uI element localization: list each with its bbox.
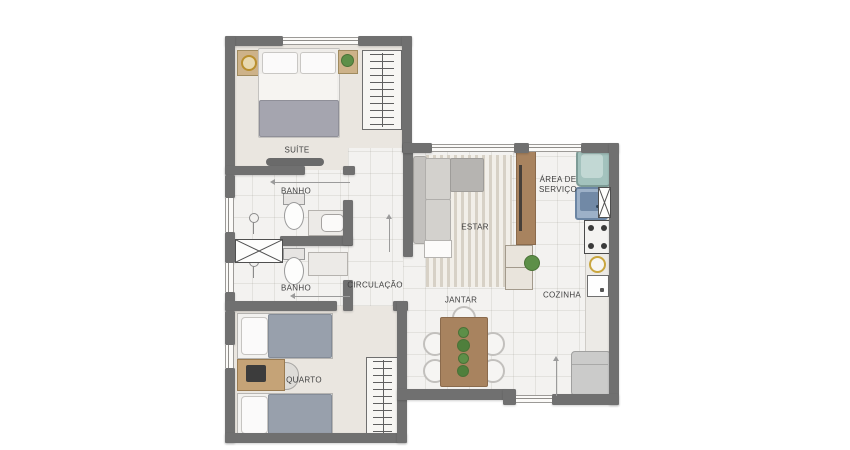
bed-sheet xyxy=(259,74,337,103)
wall xyxy=(343,200,353,245)
sofa-seat xyxy=(425,158,451,200)
wall xyxy=(225,166,305,175)
bed-blanket xyxy=(268,394,332,436)
room-label-area-servico-line1: ÁREA DE xyxy=(539,175,577,185)
wall xyxy=(552,394,619,405)
room-label-circulacao: CIRCULAÇÃO xyxy=(347,281,402,290)
plant-icon xyxy=(458,327,469,338)
room-label-area-servico: ÁREA DE SERVIÇO xyxy=(539,175,577,195)
toilet xyxy=(284,257,304,285)
wall xyxy=(397,301,407,443)
pillow xyxy=(300,52,336,74)
room-label-area-servico-line2: SERVIÇO xyxy=(539,185,577,195)
burner-icon xyxy=(588,225,594,231)
wall xyxy=(225,232,235,263)
ventilation-x-icon xyxy=(235,239,283,263)
shower-stem xyxy=(253,266,254,278)
window xyxy=(432,144,514,152)
floor-plan: SUÍTE BANHO BANHO CIRCULAÇÃO ESTAR JANTA… xyxy=(0,0,850,450)
room-label-quarto: QUARTO xyxy=(286,376,322,385)
wall xyxy=(397,389,507,400)
stove xyxy=(584,220,611,254)
room-label-banho-2: BANHO xyxy=(281,284,311,293)
kitchen-sink xyxy=(589,256,606,273)
wall xyxy=(503,389,516,405)
pillow xyxy=(241,317,268,355)
wall xyxy=(609,143,619,405)
bench xyxy=(266,158,324,166)
decor-icon xyxy=(241,55,257,71)
wall xyxy=(225,368,235,443)
window xyxy=(225,345,234,368)
wardrobe xyxy=(366,357,399,436)
window xyxy=(529,144,581,152)
bed-blanket xyxy=(268,314,332,358)
tv xyxy=(519,165,522,231)
burner-icon xyxy=(601,243,607,249)
pillow xyxy=(262,52,298,74)
wall xyxy=(402,36,412,153)
burner-icon xyxy=(601,225,607,231)
wall xyxy=(403,143,432,153)
plant-icon xyxy=(341,54,354,67)
door-arrow-icon xyxy=(389,216,390,252)
armchair-pouf xyxy=(450,158,484,192)
burner-icon xyxy=(588,243,594,249)
wall xyxy=(225,36,235,175)
wall xyxy=(225,301,337,311)
wall xyxy=(225,311,235,345)
wall xyxy=(403,143,413,257)
sofa-seat xyxy=(425,199,451,241)
bed-duvet xyxy=(259,100,339,137)
side-table xyxy=(424,240,452,258)
plant-icon xyxy=(457,339,470,352)
sink-vanity xyxy=(308,252,348,276)
window xyxy=(225,198,234,232)
room-label-estar: ESTAR xyxy=(461,223,489,232)
shower-stem xyxy=(253,222,254,234)
window xyxy=(516,395,552,403)
room-label-jantar: JANTAR xyxy=(445,296,477,305)
room-label-suite: SUÍTE xyxy=(284,146,309,155)
window xyxy=(225,263,234,292)
washer-door xyxy=(580,192,599,211)
room-label-banho-1: BANHO xyxy=(281,187,311,196)
wall xyxy=(343,166,355,175)
fridge-door-line xyxy=(572,364,608,365)
toilet xyxy=(284,202,304,230)
oven-handle xyxy=(600,288,604,292)
door-arrow-icon xyxy=(556,358,557,396)
window xyxy=(283,37,358,45)
wall xyxy=(225,433,407,443)
duct-x-icon xyxy=(598,187,611,218)
door-arrow-icon xyxy=(272,182,350,183)
wardrobe-rack-spine xyxy=(382,53,383,127)
laptop xyxy=(246,365,266,382)
wardrobe-rack-spine xyxy=(383,360,384,433)
plant-icon xyxy=(524,255,540,271)
laundry-tub-basin xyxy=(581,154,603,178)
sink-bowl xyxy=(321,214,344,232)
room-label-cozinha: COZINHA xyxy=(543,291,581,300)
wall xyxy=(225,175,235,198)
plant-icon xyxy=(457,365,469,377)
wall xyxy=(514,143,529,153)
fridge xyxy=(571,351,611,396)
pillow xyxy=(241,396,268,434)
door-arrow-icon xyxy=(292,296,350,297)
wardrobe xyxy=(362,50,402,130)
sink-vanity xyxy=(308,210,348,236)
shower-icon xyxy=(249,213,259,223)
oven xyxy=(587,275,609,297)
plant-icon xyxy=(458,353,469,364)
